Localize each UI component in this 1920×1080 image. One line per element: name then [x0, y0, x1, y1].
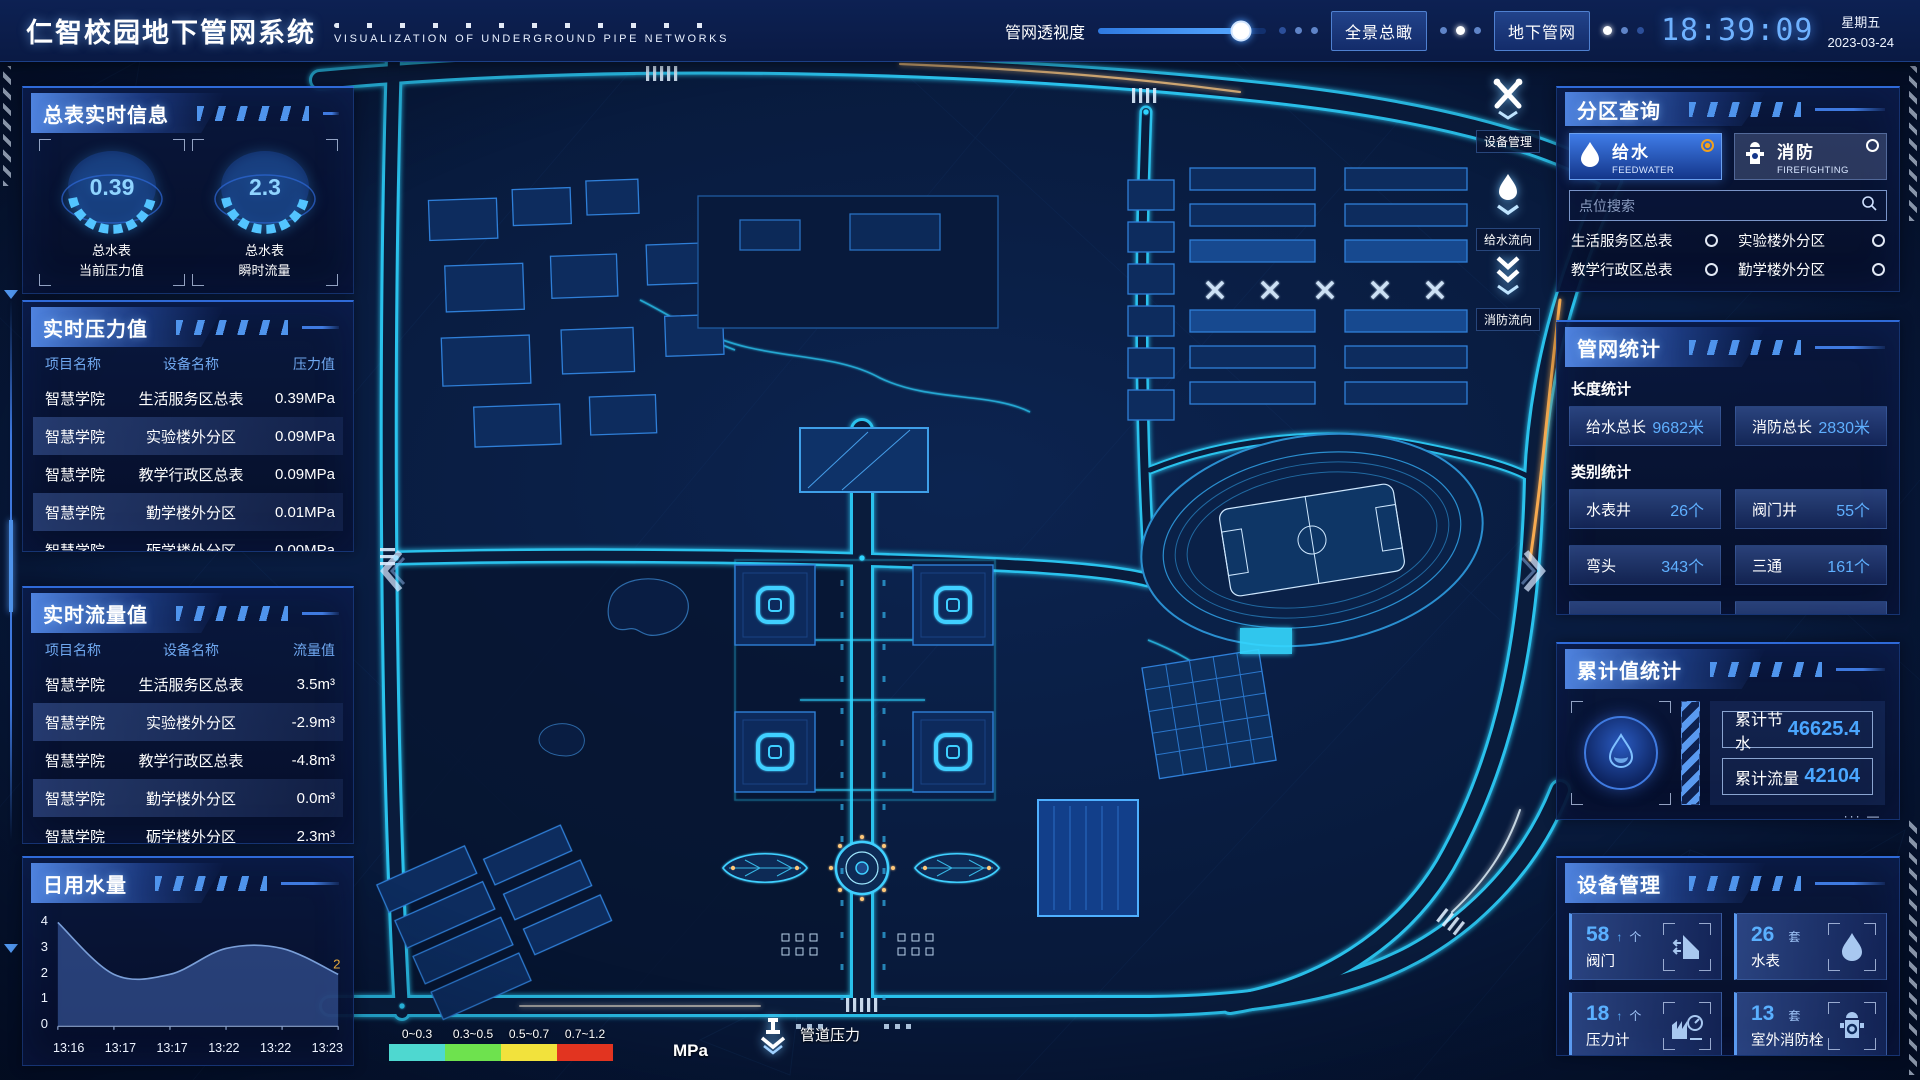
cumulative-content: 累计节水 46625.4 累计流量 42104	[1557, 691, 1899, 805]
app-title: 仁智校园地下管网系统	[26, 11, 316, 50]
tab-sublabel: FEEDWATER	[1612, 165, 1674, 176]
zone-item[interactable]: 教学行政区总表	[1571, 255, 1718, 284]
line-decoration	[302, 612, 339, 615]
map-tool-label: 设备管理	[1476, 130, 1540, 153]
table-row[interactable]: 智慧学院砺学楼外分区2.3m³	[33, 817, 343, 844]
stat-card: 消防总长2830米	[1735, 406, 1887, 446]
legend-segment: 0~0.3	[389, 1027, 445, 1061]
separator-dots	[1440, 26, 1481, 35]
slash-decoration	[1689, 340, 1801, 355]
panel-title: 日用水量	[31, 869, 127, 898]
table-header-row: 项目名称设备名称流量值	[33, 635, 343, 665]
table-row[interactable]: 智慧学院教学行政区总表-4.8m³	[33, 741, 343, 779]
gauge-dial: 0.39	[52, 143, 172, 239]
clock-date: 2023-03-24	[1828, 35, 1895, 50]
tab-label: 给水	[1612, 138, 1674, 163]
hazard-stripe-decoration	[1909, 66, 1917, 221]
device-grid: 58↑个 阀门 26套 水表 1	[1557, 905, 1899, 1056]
table-row[interactable]: 智慧学院实验楼外分区-2.9m³	[33, 703, 343, 741]
radio-icon	[1866, 139, 1879, 152]
header-dotline	[334, 23, 706, 28]
stat-card-partial	[1735, 601, 1887, 615]
table-row[interactable]: 智慧学院勤学楼外分区0.0m³	[33, 779, 343, 817]
table-row[interactable]: 智慧学院勤学楼外分区0.01MPa	[33, 493, 343, 531]
search-icon[interactable]	[1861, 195, 1877, 216]
line-decoration	[302, 326, 339, 329]
top-header: 仁智校园地下管网系统 VISUALIZATION OF UNDERGROUND …	[0, 0, 1920, 62]
radio-icon[interactable]	[1705, 234, 1718, 247]
hazard-stripe-decoration	[1681, 701, 1700, 805]
table-row[interactable]: 智慧学院生活服务区总表0.39MPa	[33, 379, 343, 417]
gauge-label: 总水表 瞬时流量	[238, 241, 290, 280]
wrench-icon	[1489, 76, 1527, 125]
separator-dots	[1279, 27, 1318, 34]
legend-swatch	[389, 1044, 445, 1061]
water-drop-icon	[1606, 733, 1636, 774]
gauge-value: 2.3	[249, 174, 281, 200]
rail-arrow-decoration	[4, 944, 18, 953]
water-badge	[1571, 701, 1671, 805]
dashboard: 仁智校园地下管网系统 VISUALIZATION OF UNDERGROUND …	[0, 0, 1920, 1080]
map-tool-device-management[interactable]: 设备管理	[1468, 76, 1548, 153]
panorama-button[interactable]: 全景总瞰	[1331, 11, 1427, 51]
slash-decoration	[176, 606, 288, 621]
category-stats: 水表井26个 阀门井55个 弯头343个 三通161个	[1557, 489, 1899, 615]
legend-unit: MPa	[673, 1041, 708, 1061]
header-controls: 管网透视度 全景总瞰 地下管网 18:39:09 星期五 2023-03-24	[1005, 11, 1894, 51]
app-subtitle: VISUALIZATION OF UNDERGROUND PIPE NETWOR…	[334, 33, 729, 45]
left-rail-segment	[9, 520, 13, 612]
hazard-stripe-decoration	[1909, 820, 1917, 1075]
panel-title: 设备管理	[1565, 869, 1661, 898]
zone-item[interactable]: 宿舍区泵房	[1738, 284, 1885, 292]
slash-decoration	[155, 876, 267, 891]
map-nav-left-arrow[interactable]	[376, 548, 406, 599]
length-stats: 给水总长9682米 消防总长2830米	[1557, 406, 1899, 446]
radio-icon[interactable]	[1872, 263, 1885, 276]
search-input[interactable]	[1579, 198, 1861, 214]
legend-segment: 0.3~0.5	[445, 1027, 501, 1061]
table-header-row: 项目名称设备名称压力值	[33, 349, 343, 379]
stats-group-label: 长度统计	[1557, 369, 1899, 406]
zone-list: 生活服务区总表 实验楼外分区 教学行政区总表 勤学楼外分区 砺学楼外分区 宿舍区…	[1557, 223, 1899, 292]
subtitle-block: VISUALIZATION OF UNDERGROUND PIPE NETWOR…	[334, 23, 729, 50]
panel-title: 累计值统计	[1565, 655, 1682, 684]
slash-decoration	[176, 320, 288, 335]
legend-segment: 0.5~0.7	[501, 1027, 557, 1061]
stat-card: 给水总长9682米	[1569, 406, 1721, 446]
daily-water-chart: 43 21 0 2 13:1613:17 13:1713:22 13:2213:…	[23, 905, 353, 1057]
line-decoration	[1815, 108, 1885, 111]
chart-x-axis: 13:1613:17 13:1713:22 13:2213:23	[53, 1041, 343, 1055]
zone-item[interactable]: 砺学楼外分区	[1571, 284, 1718, 292]
pressure-gauge: 0.39 总水表 当前压力值	[39, 139, 185, 286]
hydrant-icon	[1828, 1002, 1876, 1050]
clock-weekday: 星期五	[1828, 12, 1895, 31]
slash-decoration	[1689, 102, 1801, 117]
rail-arrow-decoration	[4, 290, 18, 299]
clock: 18:39:09 星期五 2023-03-24	[1661, 12, 1894, 50]
device-card-water-meters[interactable]: 26套 水表	[1734, 913, 1887, 980]
clock-time: 18:39:09	[1661, 13, 1814, 48]
legend-label: 管道压力	[800, 1024, 860, 1051]
panel-pipe-stats: 管网统计 长度统计 给水总长9682米 消防总长2830米 类别统计 水表井26…	[1556, 320, 1900, 615]
transparency-slider-label: 管网透视度	[1005, 19, 1085, 43]
transparency-slider-fill	[1098, 28, 1241, 34]
map-tool-water-flow[interactable]: 给水流向	[1468, 172, 1548, 251]
device-card-pressure-meters[interactable]: 18↑个 压力计	[1569, 992, 1722, 1056]
panel-title: 分区查询	[1565, 95, 1661, 124]
title-block: 仁智校园地下管网系统 VISUALIZATION OF UNDERGROUND …	[26, 11, 729, 50]
panel-zone-query: 分区查询 给水 FEEDWATER 消防	[1556, 86, 1900, 292]
zone-item[interactable]: 勤学楼外分区	[1738, 255, 1885, 284]
gauge-row: 0.39 总水表 当前压力值 2.3 总水表 瞬时流量	[23, 135, 353, 290]
pressure-gauge-icon	[1663, 1002, 1711, 1050]
stat-card: 阀门井55个	[1735, 489, 1887, 529]
legend-swatch	[501, 1044, 557, 1061]
radio-icon[interactable]	[1872, 234, 1885, 247]
stat-card: 弯头343个	[1569, 545, 1721, 585]
line-decoration	[1836, 668, 1885, 671]
chevrons-down-icon	[1490, 254, 1526, 303]
map-tool-label: 消防流向	[1476, 308, 1540, 331]
tab-firefighting[interactable]: 消防 FIREFIGHTING	[1734, 133, 1887, 180]
panel-daily-water: 日用水量 43 21 0 2 13:1613:17 13:1713:22 13:…	[22, 856, 354, 1066]
line-decoration	[1815, 882, 1885, 885]
chart-plot-area: 2 13:1613:17 13:1713:22 13:2213:23	[53, 913, 343, 1057]
stat-card-partial	[1569, 601, 1721, 615]
zone-item[interactable]: 实验楼外分区	[1738, 226, 1885, 255]
separator-dots	[1603, 26, 1644, 35]
dots-decoration: ··· —	[1557, 805, 1899, 820]
legend-swatch	[557, 1044, 613, 1061]
water-flow-icon	[1490, 172, 1526, 223]
section-header: 总表实时信息	[31, 93, 343, 133]
pressure-meter-icon	[756, 1014, 790, 1061]
panel-realtime-flow: 实时流量值 项目名称设备名称流量值 智慧学院生活服务区总表3.5m³ 智慧学院实…	[22, 586, 354, 844]
underground-pipes-button[interactable]: 地下管网	[1494, 11, 1590, 51]
line-decoration	[1815, 346, 1885, 349]
panel-title: 管网统计	[1565, 333, 1661, 362]
stat-row: 累计流量 42104	[1722, 758, 1873, 795]
slash-decoration	[1710, 662, 1822, 677]
stat-card: 水表井26个	[1569, 489, 1721, 529]
pipe-pressure-tool[interactable]: 管道压力	[756, 1014, 860, 1061]
panel-title: 实时流量值	[31, 599, 148, 628]
legend-segment: 0.7~1.2	[557, 1027, 613, 1061]
tab-label: 消防	[1777, 138, 1849, 163]
tab-sublabel: FIREFIGHTING	[1777, 165, 1849, 176]
device-card-valves[interactable]: 58↑个 阀门	[1569, 913, 1722, 980]
table-row[interactable]: 智慧学院实验楼外分区0.09MPa	[33, 417, 343, 455]
map-nav-right-arrow[interactable]	[1520, 548, 1550, 599]
stat-card: 三通161个	[1735, 545, 1887, 585]
slash-decoration	[1689, 876, 1801, 891]
transparency-slider[interactable]	[1098, 28, 1266, 34]
valve-icon	[1663, 923, 1711, 971]
slash-decoration	[197, 106, 309, 121]
zone-tabs: 给水 FEEDWATER 消防 FIREFIGHTING	[1557, 128, 1899, 182]
panel-title: 实时压力值	[31, 313, 148, 342]
radio-icon[interactable]	[1705, 263, 1718, 276]
map-tool-label: 给水流向	[1476, 228, 1540, 251]
pressure-legend: 0~0.3 0.3~0.5 0.5~0.7 0.7~1.2 MPa 管道压力	[389, 1014, 860, 1061]
flow-gauge: 2.3 总水表 瞬时流量	[192, 139, 338, 286]
panel-cumulative-stats: 累计值统计 累计节水 46625.4 累计流量	[1556, 642, 1900, 820]
water-meter-icon	[1828, 923, 1876, 971]
line-decoration	[323, 112, 339, 115]
device-card-hydrants[interactable]: 13套 室外消防栓	[1734, 992, 1887, 1056]
water-drop-icon	[1578, 140, 1602, 173]
legend-swatch	[445, 1044, 501, 1061]
hazard-stripe-decoration	[3, 66, 11, 186]
gauge-dial: 2.3	[205, 143, 325, 239]
stat-row: 累计节水 46625.4	[1722, 711, 1873, 748]
panel-title: 总表实时信息	[31, 99, 169, 128]
table-row[interactable]: 智慧学院生活服务区总表3.5m³	[33, 665, 343, 703]
table-row[interactable]: 智慧学院教学行政区总表0.09MPa	[33, 455, 343, 493]
svg-text:2: 2	[333, 957, 340, 972]
panel-device-management: 设备管理 58↑个 阀门 26套 水表	[1556, 856, 1900, 1056]
cumulative-values: 累计节水 46625.4 累计流量 42104	[1710, 701, 1885, 805]
hydrant-icon	[1743, 140, 1767, 173]
zone-item[interactable]: 生活服务区总表	[1571, 226, 1718, 255]
tab-feedwater[interactable]: 给水 FEEDWATER	[1569, 133, 1722, 180]
search-box	[1569, 190, 1887, 221]
panel-meter-info: 总表实时信息 0.39 总水表 当前压力值	[22, 86, 354, 294]
line-decoration	[281, 882, 339, 885]
gauge-label: 总水表 当前压力值	[79, 241, 144, 280]
map-tool-fire-flow[interactable]: 消防流向	[1468, 254, 1548, 331]
table-row[interactable]: 智慧学院砺学楼外分区0.00MPa	[33, 531, 343, 552]
transparency-slider-knob[interactable]	[1230, 20, 1251, 41]
chart-y-axis: 43 21 0	[31, 913, 53, 1057]
radio-icon	[1701, 139, 1714, 152]
panel-realtime-pressure: 实时压力值 项目名称设备名称压力值 智慧学院生活服务区总表0.39MPa 智慧学…	[22, 300, 354, 552]
gauge-value: 0.39	[89, 174, 134, 200]
stats-group-label: 类别统计	[1557, 452, 1899, 489]
